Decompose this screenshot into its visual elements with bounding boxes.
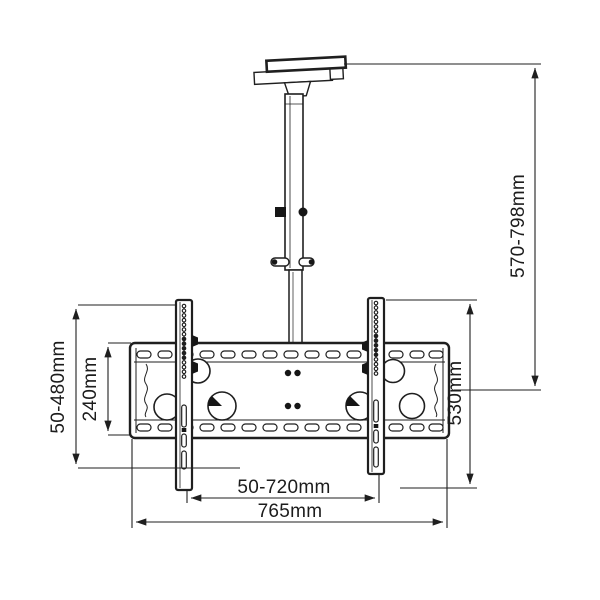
right-rail-slot [374, 447, 379, 467]
dim-label-vesa-vertical: 50-480mm [48, 340, 69, 433]
dim-label-rail-height: 530mm [445, 361, 466, 426]
diagram-canvas: 570-798mm 530mm 50-480mm 240mm 50-720mm … [0, 0, 600, 600]
pole-outer-tube [285, 94, 303, 270]
right-rail-stop [374, 424, 379, 428]
pole-inner-tube [289, 270, 302, 347]
dim-label-plate-height: 240mm [80, 357, 101, 422]
mount-pole [271, 94, 314, 347]
ceiling-plate [253, 57, 347, 99]
dim-label-plate-width: 765mm [258, 501, 323, 522]
height-lock-screw [275, 207, 286, 217]
right-rail-slot [374, 400, 379, 422]
cable-hole [400, 394, 425, 419]
right-rail-slot [374, 430, 379, 443]
height-lock-knob [299, 208, 308, 217]
left-rail-slot [182, 434, 187, 447]
screw-hole [285, 403, 291, 409]
screw-hole [294, 403, 300, 409]
left-rail-stop [182, 428, 187, 432]
ceiling-plate-upper-bar [266, 57, 345, 72]
left-rail-slot [182, 405, 187, 427]
dim-label-drop-height: 570-798mm [508, 174, 529, 278]
screw-hole [294, 370, 300, 376]
left-rail-slot [182, 451, 187, 469]
dim-label-vesa-horizontal: 50-720mm [237, 477, 330, 498]
wing-screw-right-tip [309, 259, 315, 265]
wing-screw-left-tip [272, 259, 278, 265]
screw-hole [285, 370, 291, 376]
